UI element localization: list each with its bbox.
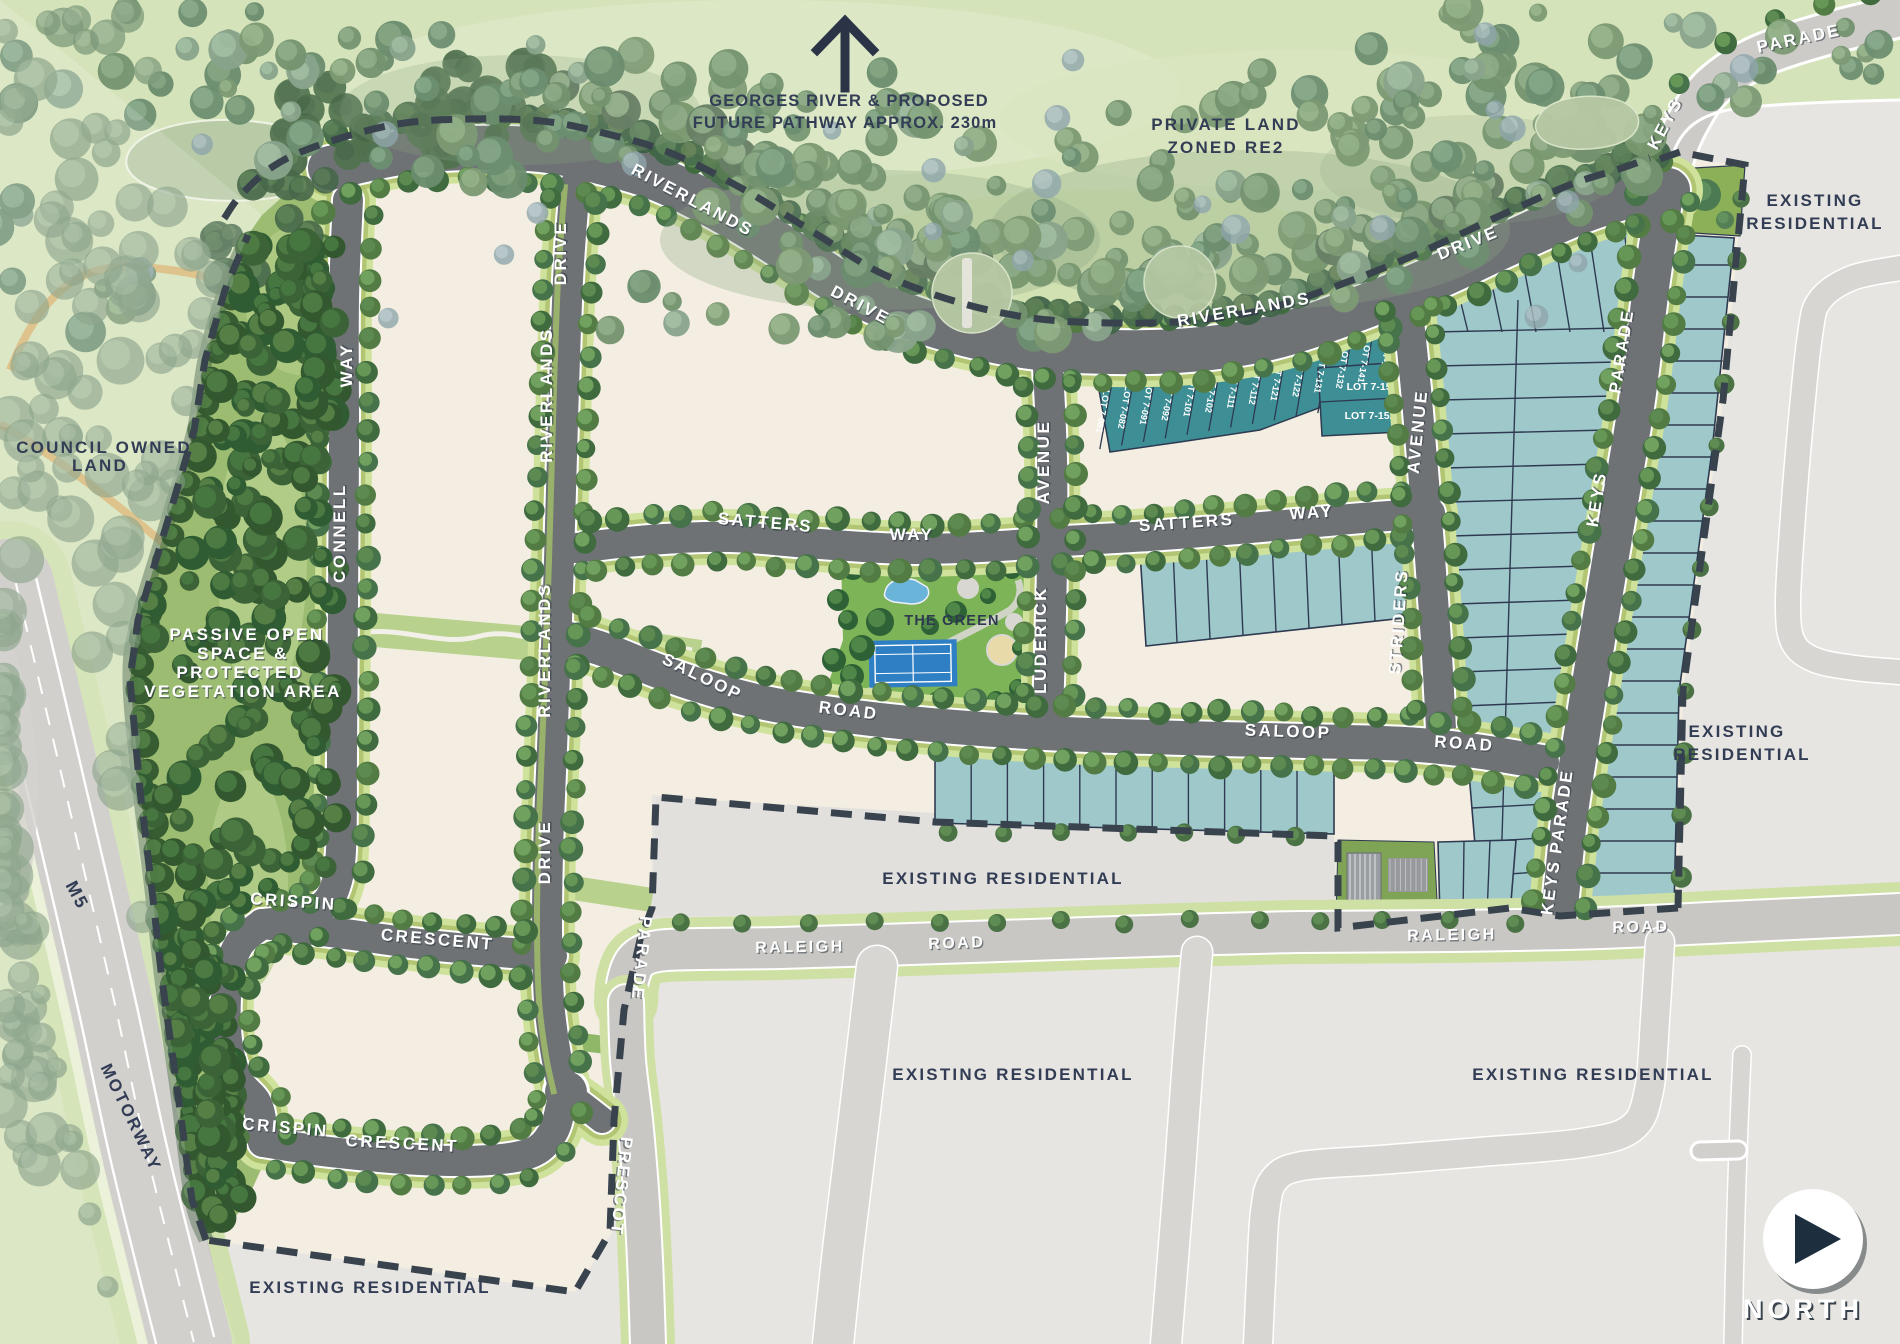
svg-text:SALOOP: SALOOP [1244,720,1331,742]
svg-text:DRIVE: DRIVE [551,221,570,285]
svg-text:LUDERICK: LUDERICK [1031,586,1050,694]
svg-text:AVENUE: AVENUE [1034,420,1053,505]
svg-text:RALEIGH: RALEIGH [1407,926,1497,945]
svg-text:ROAD: ROAD [1612,919,1669,937]
svg-text:ZONED RE2: ZONED RE2 [1167,138,1284,157]
svg-text:RIVERLANDS: RIVERLANDS [537,327,556,463]
svg-text:COUNCIL OWNED: COUNCIL OWNED [16,438,192,457]
svg-text:PASSIVE OPEN: PASSIVE OPEN [169,625,324,644]
svg-text:LAND: LAND [72,456,128,475]
svg-text:EXISTING: EXISTING [1689,722,1786,741]
svg-text:RESIDENTIAL: RESIDENTIAL [1673,745,1811,764]
svg-text:SPACE &: SPACE & [197,644,289,663]
svg-text:EXISTING RESIDENTIAL: EXISTING RESIDENTIAL [1472,1065,1713,1084]
svg-text:EXISTING RESIDENTIAL: EXISTING RESIDENTIAL [249,1278,490,1297]
svg-text:CONNELL: CONNELL [330,483,349,583]
svg-text:WAY: WAY [337,343,356,388]
svg-text:EXISTING: EXISTING [1767,191,1864,210]
svg-text:PRIVATE LAND: PRIVATE LAND [1151,115,1301,134]
svg-text:VEGETATION AREA: VEGETATION AREA [144,682,342,701]
svg-text:EXISTING RESIDENTIAL: EXISTING RESIDENTIAL [892,1065,1133,1084]
svg-text:DRIVE: DRIVE [535,820,554,884]
svg-text:RALEIGH: RALEIGH [755,938,845,957]
svg-text:RESIDENTIAL: RESIDENTIAL [1746,214,1884,233]
svg-text:NORTH: NORTH [1743,1294,1864,1324]
svg-text:ROAD: ROAD [928,934,986,953]
svg-text:RIVERLANDS: RIVERLANDS [535,582,554,718]
svg-text:THE GREEN: THE GREEN [904,613,999,629]
svg-text:EXISTING RESIDENTIAL: EXISTING RESIDENTIAL [882,869,1123,888]
svg-text:PROTECTED: PROTECTED [176,663,303,682]
svg-text:WAY: WAY [1289,501,1335,523]
svg-text:GEORGES RIVER & PROPOSED: GEORGES RIVER & PROPOSED [709,92,988,110]
svg-text:WAY: WAY [890,525,935,544]
svg-text:FUTURE PATHWAY APPROX. 230m: FUTURE PATHWAY APPROX. 230m [693,114,997,132]
